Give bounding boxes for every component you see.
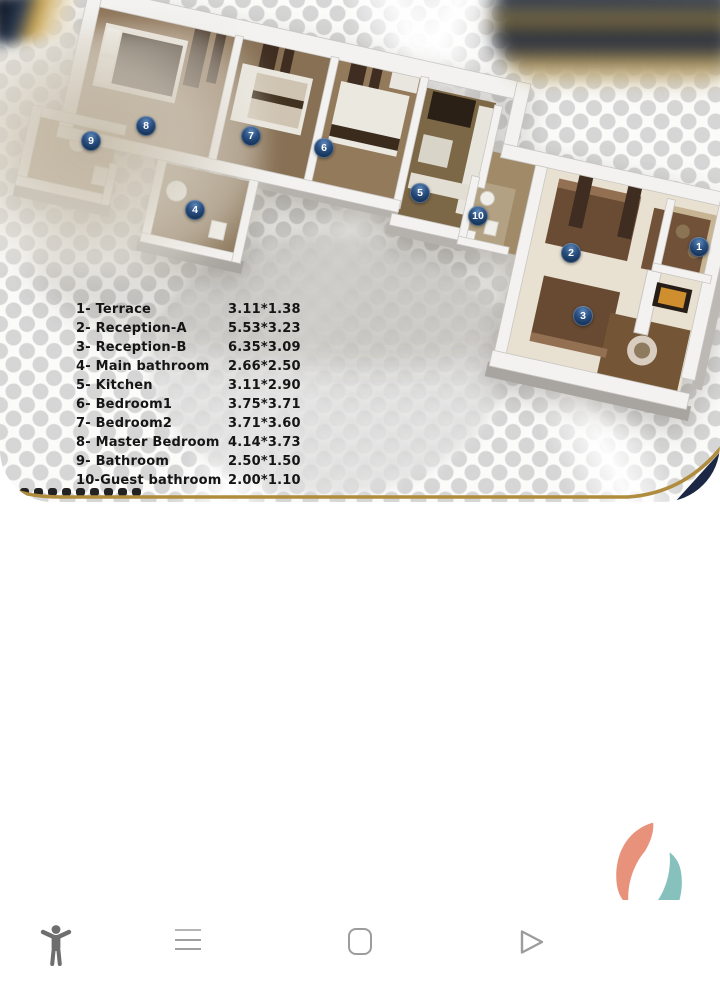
room-marker-kitchen: 5	[410, 183, 430, 203]
legend-row: 2- Reception-A5.53*3.23	[76, 319, 318, 338]
menu-icon[interactable]	[175, 929, 201, 958]
room-marker-terrace: 1	[689, 237, 709, 257]
room-marker-main-bathroom: 4	[185, 200, 205, 220]
room-marker-guest-bathroom: 10	[468, 206, 488, 226]
blurred-watermark	[490, 0, 720, 90]
navigation-bar	[0, 900, 720, 988]
room-marker-bedroom1: 6	[314, 138, 334, 158]
legend-row: 7- Bedroom23.71*3.60	[76, 414, 318, 433]
legend-room-size: 3.75*3.71	[228, 395, 318, 414]
back-icon[interactable]	[519, 929, 545, 955]
room-marker-bedroom2: 7	[241, 126, 261, 146]
legend-room-size: 2.66*2.50	[228, 357, 318, 376]
legend-row: 4- Main bathroom2.66*2.50	[76, 357, 318, 376]
legend-room-label: 4- Main bathroom	[76, 357, 228, 376]
legend-room-label: 6- Bedroom1	[76, 395, 228, 414]
legend-room-size: 3.11*2.90	[228, 376, 318, 395]
legend-room-label: 7- Bedroom2	[76, 414, 228, 433]
legend-room-size: 6.35*3.09	[228, 338, 318, 357]
gold-border	[0, 436, 720, 502]
blur-smudge	[0, 25, 265, 280]
legend-row: 1- Terrace3.11*1.38	[76, 300, 318, 319]
logo-orange-petal	[616, 823, 653, 906]
legend-room-label: 5- Kitchen	[76, 376, 228, 395]
legend-row: 3- Reception-B6.35*3.09	[76, 338, 318, 357]
room-marker-reception-b: 3	[573, 306, 593, 326]
legend-room-label: 2- Reception-A	[76, 319, 228, 338]
room-marker-reception-a: 2	[561, 243, 581, 263]
accessibility-icon[interactable]	[39, 924, 73, 968]
legend-room-size: 5.53*3.23	[228, 319, 318, 338]
floor-plan-flyer[interactable]: 1 2 3 4 5 6 7 8 9 10 1- Terrace3.11*1.38…	[0, 0, 720, 502]
phone-screen: 1 2 3 4 5 6 7 8 9 10 1- Terrace3.11*1.38…	[0, 0, 720, 988]
legend-room-label: 3- Reception-B	[76, 338, 228, 357]
legend-room-size: 3.71*3.60	[228, 414, 318, 433]
home-icon[interactable]	[348, 928, 372, 955]
room-marker-master-bedroom: 8	[136, 116, 156, 136]
legend-row: 5- Kitchen3.11*2.90	[76, 376, 318, 395]
legend-room-label: 1- Terrace	[76, 300, 228, 319]
legend-row: 6- Bedroom13.75*3.71	[76, 395, 318, 414]
room-marker-bathroom: 9	[81, 131, 101, 151]
legend-room-size: 3.11*1.38	[228, 300, 318, 319]
